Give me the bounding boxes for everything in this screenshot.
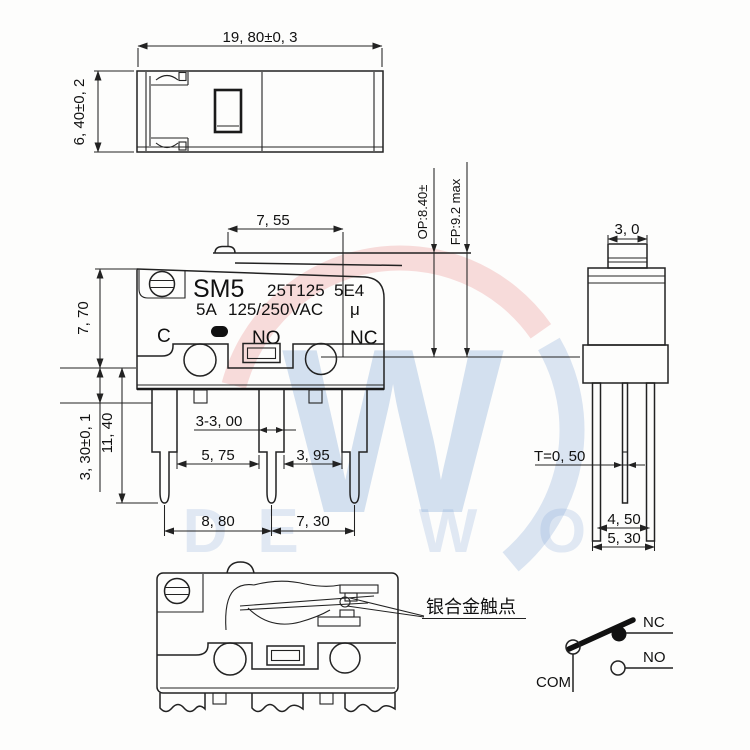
screw-head-icon — [150, 272, 175, 297]
pin-length-dim: 11, 40 — [99, 413, 116, 454]
pin-c — [152, 390, 177, 503]
section-rivet-right — [330, 643, 360, 673]
section-screw-boss — [157, 574, 203, 612]
pin-inner-dim: 4, 50 — [607, 511, 640, 528]
section-pin-right-broken — [345, 693, 395, 712]
fp-dim: FP:9.2 max — [448, 178, 463, 245]
section-body-outline — [157, 573, 398, 693]
circuit-no-label: NO — [643, 649, 666, 666]
section-tab-right — [320, 693, 333, 704]
terminal-c-label: C — [157, 326, 171, 347]
watermark-letter-w: W — [419, 497, 478, 566]
nc-contact-symbol — [612, 627, 627, 642]
gap-right-dim: 3, 95 — [296, 447, 329, 464]
top-width-dim: 19, 80±0, 3 — [223, 29, 298, 46]
model-label: SM5 — [193, 275, 244, 303]
top-height-dim: 6, 40±0, 2 — [71, 79, 88, 146]
op-dim: OP:8.40± — [415, 185, 430, 240]
pin-step-dim: 3, 30±0, 1 — [77, 414, 94, 481]
thickness-dim: T=0, 50 — [534, 448, 585, 465]
top-view: 19, 80±0, 3 6, 40±0, 2 — [71, 29, 383, 152]
lever-hinge-loop — [215, 247, 235, 254]
pitch-left-dim: 8, 80 — [201, 513, 234, 530]
code-left-label: 25T125 — [267, 281, 325, 300]
technical-drawing-page: W D E W O 19, 80±0, 3 6, 40±0, 2 — [0, 0, 750, 750]
gap-left-dim: 5, 75 — [201, 447, 234, 464]
watermark-letter-o: O — [538, 497, 586, 566]
side-pin-center — [623, 383, 628, 503]
screw-boss — [139, 270, 185, 298]
lever-dim: 7, 55 — [256, 212, 289, 229]
rivet-left — [184, 344, 216, 376]
section-pin-left-broken — [160, 693, 205, 712]
section-slot-outer — [267, 646, 304, 665]
micro-switch-drawing: W D E W O 19, 80±0, 3 6, 40±0, 2 — [0, 0, 750, 750]
top-view-outline — [137, 71, 383, 152]
terminal-no-label: NO — [252, 328, 281, 349]
circuit-diagram: NC NO COM — [536, 614, 673, 692]
circuit-com-label: COM — [536, 674, 571, 691]
pin-width-dim: 3-3, 00 — [196, 413, 243, 430]
side-body-base — [583, 345, 668, 383]
rating-voltage-label: 125/250VAC — [228, 300, 323, 319]
circuit-nc-label: NC — [643, 614, 665, 631]
top-view-clip-top — [151, 72, 188, 85]
mu-label: μ — [350, 300, 360, 319]
pin-outer-dim: 5, 30 — [607, 530, 640, 547]
section-tab-left — [213, 693, 226, 704]
body-height-dim: 7, 70 — [75, 301, 92, 334]
internal-spring-mechanism — [226, 581, 378, 630]
no-contact-symbol — [611, 661, 625, 675]
top-view-clip-bottom — [151, 138, 188, 151]
rating-current-label: 5A — [196, 300, 217, 319]
code-right-label: 5E4 — [334, 281, 364, 300]
pin-no — [259, 390, 284, 503]
section-slot-inner — [272, 651, 300, 661]
pitch-right-dim: 7, 30 — [296, 513, 329, 530]
section-view: 银合金触点 — [157, 562, 526, 712]
tab-left — [194, 390, 207, 403]
button-width-dim: 3, 0 — [614, 221, 639, 238]
side-button — [608, 244, 647, 268]
mark-dot — [211, 326, 228, 337]
section-pin-mid-broken — [252, 693, 303, 712]
terminal-nc-label: NC — [350, 328, 377, 349]
side-pin-left — [593, 383, 601, 541]
side-pin-right — [647, 383, 655, 541]
section-button-bump — [227, 562, 254, 573]
section-screw-head-icon — [165, 579, 190, 604]
silver-contact-callout: 银合金触点 — [426, 597, 516, 617]
side-body-upper — [588, 268, 665, 345]
section-rivet-left — [214, 643, 246, 675]
